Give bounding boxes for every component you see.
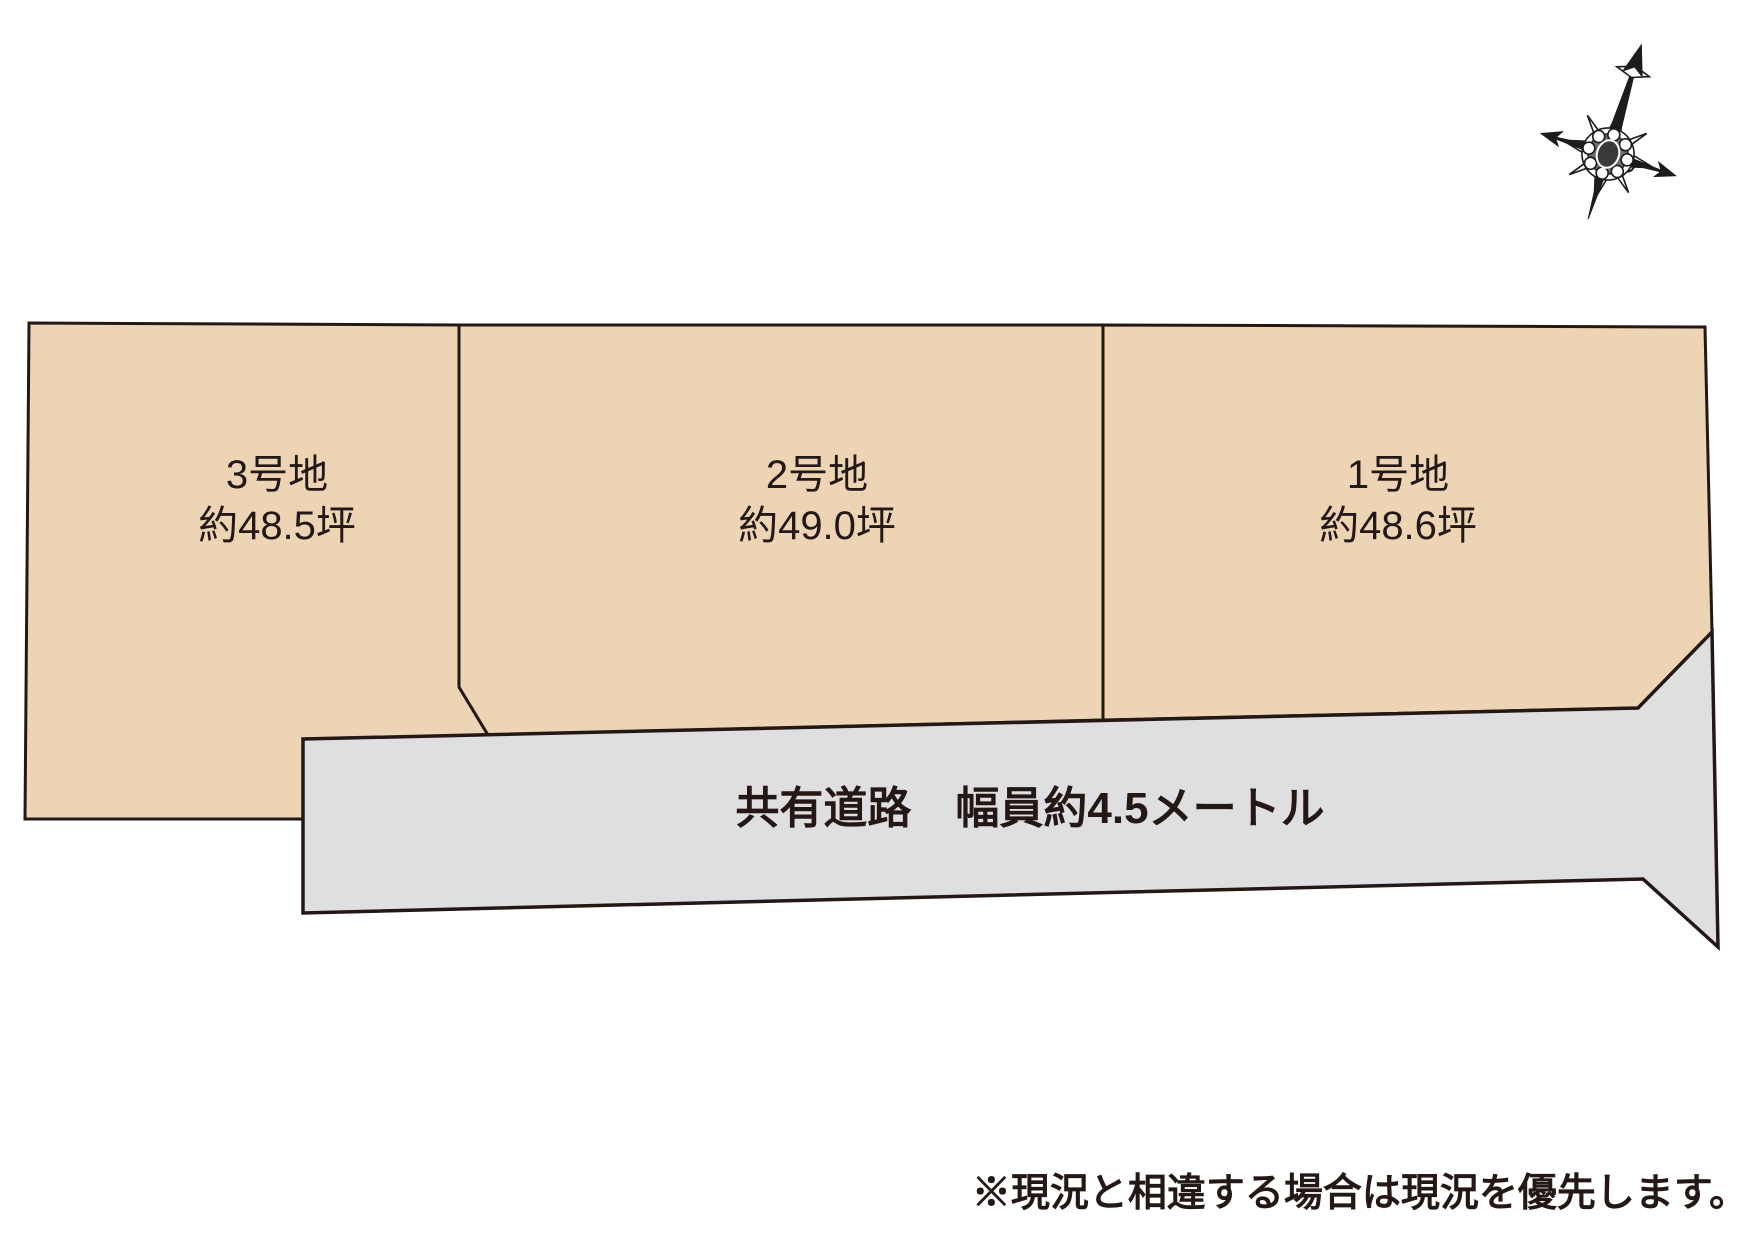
plot-1-name: 1号地 [1319,450,1477,501]
shared-road-label: 共有道路 幅員約4.5メートル [735,785,1324,833]
disclaimer-note: ※現況と相違する場合は現況を優先します。 [972,1172,1748,1216]
plot-3-area: 約48.5坪 [198,501,356,552]
plot-2-name: 2号地 [738,450,896,501]
plot-1-label: 1号地 約48.6坪 [1319,450,1477,552]
site-plan-drawing [0,0,1754,1241]
plot-2-label: 2号地 約49.0坪 [738,450,896,552]
plot-3-label: 3号地 約48.5坪 [198,450,356,552]
compass-rose-icon [1521,25,1709,240]
site-plan-canvas: 3号地 約48.5坪 2号地 約49.0坪 1号地 約48.6坪 共有道路 幅員… [0,0,1754,1241]
plot-2-area: 約49.0坪 [738,501,896,552]
plot-1-area: 約48.6坪 [1319,501,1477,552]
plot-3-name: 3号地 [198,450,356,501]
